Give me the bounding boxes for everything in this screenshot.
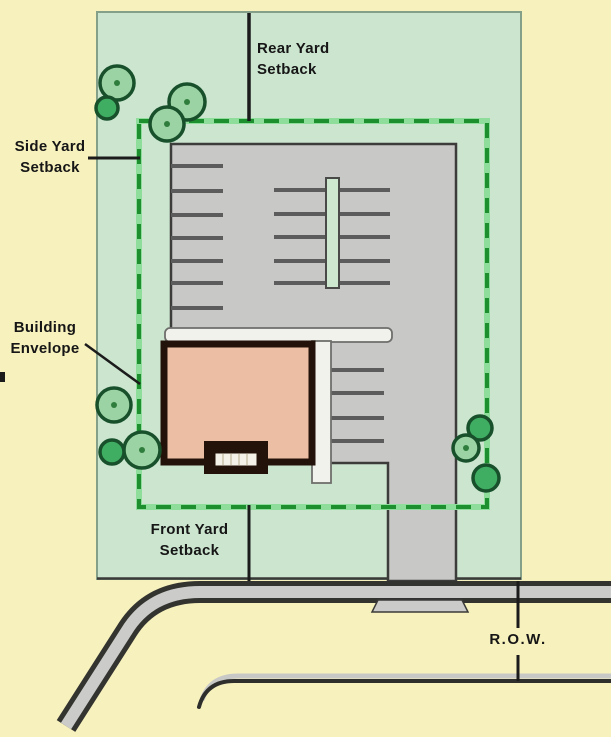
- site-plan-diagram: Rear Yard Setback Side Yard Setback Buil…: [0, 0, 611, 737]
- tree-center-dot: [114, 80, 120, 86]
- tree: [100, 440, 124, 464]
- road-upper-surface: [66, 592, 611, 726]
- tree: [96, 97, 118, 119]
- tree-center-dot: [184, 99, 190, 105]
- tree-center-dot: [164, 121, 170, 127]
- label-line: Rear Yard: [257, 38, 329, 59]
- label-line: Envelope: [0, 338, 90, 359]
- parking-median-island: [326, 178, 339, 288]
- label-line: Setback: [257, 59, 329, 80]
- tree: [473, 465, 499, 491]
- label-building-envelope: Building Envelope: [0, 317, 90, 359]
- label-right-of-way: R.O.W.: [482, 629, 554, 650]
- label-rear-yard-setback: Rear Yard Setback: [257, 38, 329, 80]
- label-line: Side Yard: [0, 136, 100, 157]
- road-lower-curb: [199, 681, 611, 707]
- driveway-apron: [372, 600, 468, 612]
- label-front-yard-setback: Front Yard Setback: [141, 519, 238, 561]
- tree-center-dot: [463, 445, 469, 451]
- label-side-yard-setback: Side Yard Setback: [0, 136, 100, 178]
- label-line: Setback: [0, 157, 100, 178]
- label-line: R.O.W.: [482, 629, 554, 650]
- label-line: Building: [0, 317, 90, 338]
- site-plan-canvas: [0, 0, 611, 737]
- walkway-band: [165, 328, 392, 342]
- entrance-steps: [214, 452, 258, 467]
- tree-center-dot: [111, 402, 117, 408]
- edge-artifact-mark: [0, 372, 5, 382]
- label-line: Setback: [141, 540, 238, 561]
- label-line: Front Yard: [141, 519, 238, 540]
- tree-center-dot: [139, 447, 145, 453]
